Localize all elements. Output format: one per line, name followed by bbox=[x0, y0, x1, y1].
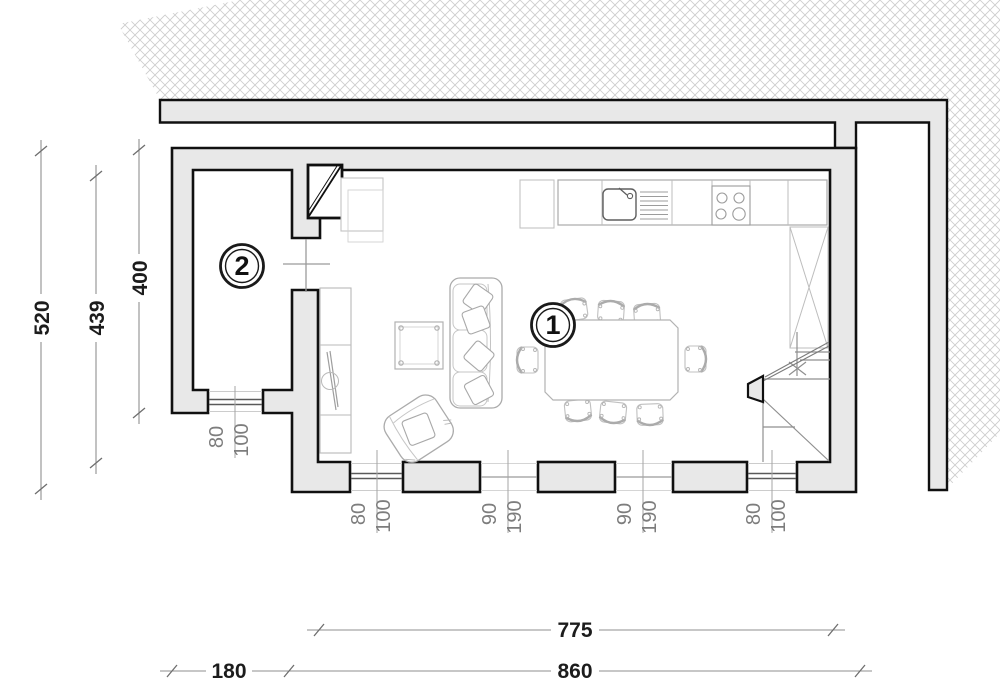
opening-dim-width: 80 bbox=[348, 503, 370, 525]
hob-icon bbox=[712, 186, 750, 225]
opening-dim-height: 190 bbox=[639, 500, 661, 533]
room-label-1: 1 bbox=[532, 304, 575, 347]
dining-chair bbox=[599, 401, 627, 425]
opening-dim-height: 100 bbox=[373, 499, 395, 532]
sofa bbox=[450, 278, 502, 408]
door-opening-symbol bbox=[616, 464, 672, 491]
dim-left-inner: 439 bbox=[86, 300, 109, 335]
interior-door-symbol bbox=[283, 239, 330, 292]
dining-chair bbox=[564, 399, 592, 423]
stair-newel bbox=[748, 376, 763, 402]
dining-chair bbox=[517, 347, 538, 373]
opening-dim-width: 90 bbox=[479, 503, 501, 525]
kitchen-cabinet bbox=[341, 178, 383, 231]
floor-plan-canvas: 1 2 520 439 bbox=[0, 0, 1000, 696]
door-opening-symbol bbox=[481, 464, 537, 491]
dim-left-room2: 400 bbox=[129, 260, 152, 295]
dim-bottom-living: 775 bbox=[557, 619, 592, 642]
dining-chair bbox=[637, 404, 664, 426]
opening-dim-width: 80 bbox=[743, 503, 765, 525]
armchair bbox=[379, 389, 460, 467]
wall-pier bbox=[403, 462, 480, 492]
wall-pier bbox=[538, 462, 615, 492]
dim-left-overall: 520 bbox=[31, 300, 54, 335]
opening-dim-height: 190 bbox=[504, 500, 526, 533]
dim-bottom-left-section: 180 bbox=[211, 660, 246, 683]
room-number: 2 bbox=[234, 251, 249, 281]
ground-hatch-region bbox=[118, 0, 1000, 489]
wall-pier bbox=[673, 462, 747, 492]
tv-unit bbox=[320, 288, 351, 453]
opening-dim-height: 100 bbox=[231, 423, 253, 456]
floor-plan-drawing: 1 2 520 439 bbox=[0, 0, 1000, 696]
coffee-table bbox=[395, 322, 443, 369]
tall-cabinet bbox=[790, 227, 828, 348]
opening-dim-width: 90 bbox=[614, 503, 636, 525]
dining-chair bbox=[685, 346, 706, 372]
staircase bbox=[748, 332, 830, 462]
chimney-flue bbox=[308, 165, 342, 218]
kitchen-cabinet bbox=[520, 180, 554, 228]
room-number: 1 bbox=[545, 310, 560, 340]
room-label-2: 2 bbox=[221, 245, 264, 288]
opening-dim-width: 80 bbox=[206, 426, 228, 448]
dim-bottom-main-section: 860 bbox=[557, 660, 592, 683]
kitchen-counter bbox=[558, 180, 827, 225]
opening-dim-height: 100 bbox=[768, 499, 790, 532]
